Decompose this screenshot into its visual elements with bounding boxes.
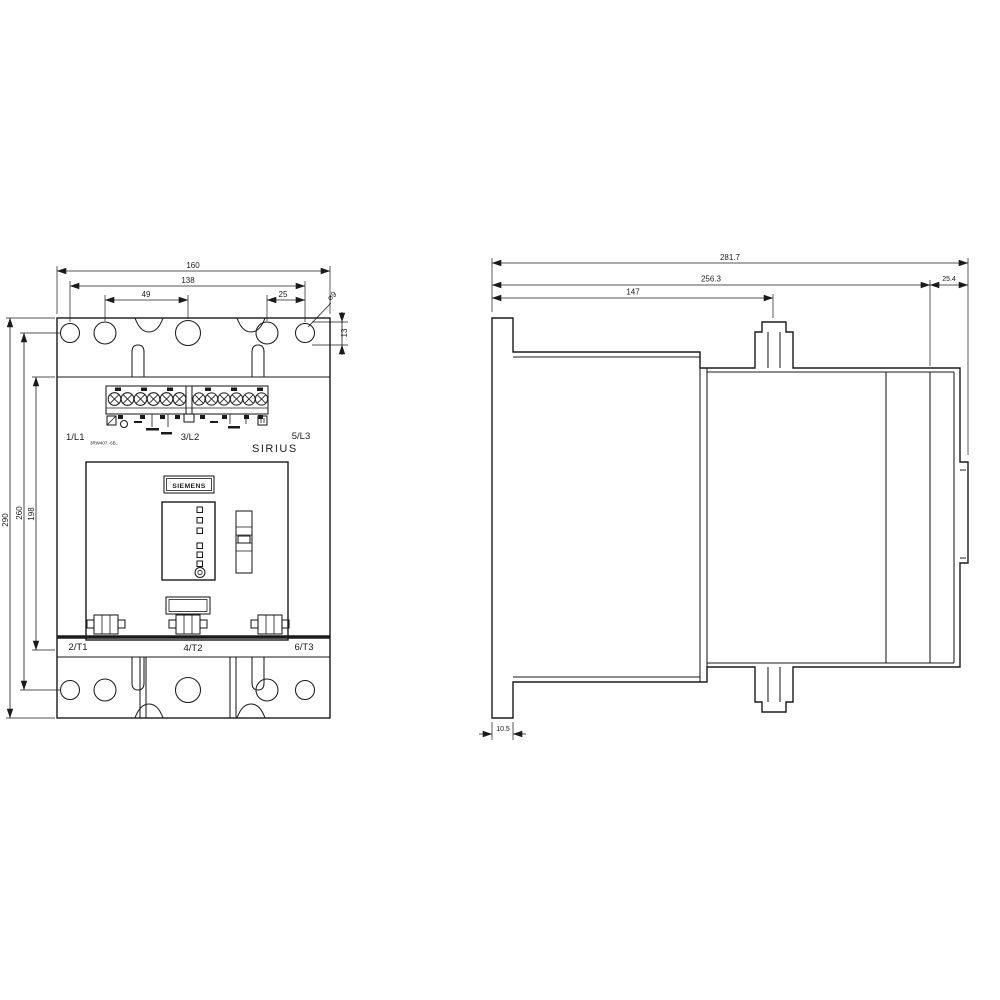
canvas-background: [0, 0, 1000, 1000]
dimension-drawing-page: 1/L1 3RW407.-6B.. 3/L2 5/L3 SIRIUS SIEME…: [0, 0, 1000, 1000]
dim-text-depth-mounting: 256.3: [701, 275, 722, 284]
dim-text-hole-pitch-right: 25: [279, 290, 288, 299]
type-code-label: 3RW407.-6B..: [90, 441, 118, 446]
dim-text-height-mounting: 260: [15, 506, 24, 520]
technical-drawing: 1/L1 3RW407.-6B.. 3/L2 5/L3 SIRIUS SIEME…: [0, 0, 1000, 1000]
line-terminal-label-l1: 1/L1: [66, 432, 85, 443]
line-terminal-label-l2: 3/L2: [181, 432, 200, 443]
dim-text-depth-front: 147: [626, 288, 640, 297]
dim-text-slot-height: 13: [340, 328, 349, 337]
dim-text-foot: 10.5: [496, 726, 510, 733]
sirius-brand-label: SIRIUS: [252, 443, 298, 455]
dim-text-height-body: 198: [27, 507, 36, 521]
dim-text-width-mounting: 138: [181, 276, 195, 285]
dim-text-width-overall: 160: [186, 261, 200, 270]
dim-text-height-overall: 290: [1, 513, 10, 527]
dim-text-depth-overall: 281.7: [720, 253, 741, 262]
dim-text-depth-rail: 25.4: [942, 276, 956, 283]
load-terminal-label-t2: 4/T2: [183, 643, 202, 654]
load-terminal-label-t3: 6/T3: [294, 642, 313, 653]
load-terminal-label-t1: 2/T1: [68, 642, 87, 653]
siemens-logo-text: SIEMENS: [172, 483, 205, 490]
line-terminal-label-l3: 5/L3: [292, 431, 311, 442]
dim-text-hole-pitch-left: 49: [142, 290, 151, 299]
